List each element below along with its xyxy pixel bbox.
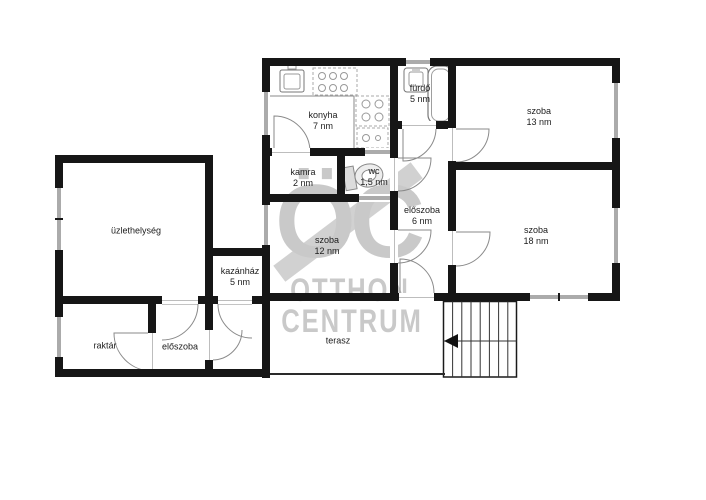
room-label-eloszoba-2: előszoba — [162, 342, 198, 353]
window — [262, 92, 270, 135]
window — [359, 194, 390, 202]
window — [55, 317, 63, 357]
door-arc-szoba18 — [456, 232, 490, 266]
door-opening — [148, 333, 156, 369]
fixtures-layer — [0, 0, 706, 500]
window-mullion — [55, 218, 63, 220]
window — [365, 148, 390, 156]
floorplan-canvas: ÖC OTTHON CENTRUM — [0, 0, 706, 500]
door-arc-szoba12 — [398, 230, 431, 263]
wall — [448, 162, 620, 170]
room-label-furdo: fürdő5 nm — [410, 83, 431, 105]
door-opening — [162, 296, 198, 304]
wall — [262, 58, 620, 66]
door-arc-kamra — [274, 116, 310, 152]
door-opening — [272, 148, 310, 156]
window — [612, 83, 620, 138]
room-label-raktar: raktár — [93, 341, 116, 352]
door-arc-raktar — [114, 333, 152, 371]
wall — [205, 248, 270, 256]
door-opening — [399, 293, 434, 301]
wall — [55, 155, 213, 163]
terrace-edge — [262, 373, 445, 375]
kitchen-counter-icon — [270, 65, 389, 150]
wall — [337, 148, 345, 202]
window — [262, 205, 270, 245]
room-label-wc: wc1,5 nm — [360, 166, 388, 188]
window — [406, 58, 430, 66]
door-arc-terasz-exit — [400, 259, 434, 293]
door-opening — [390, 158, 398, 191]
room-label-uzlethelyseg: üzlethelység — [111, 226, 161, 237]
door-opening — [205, 330, 213, 360]
room-label-szoba18: szoba18 nm — [523, 225, 548, 247]
room-label-kamra: kamra2 nm — [290, 167, 315, 189]
door-opening — [448, 231, 456, 265]
stove-burners-icon — [319, 73, 348, 92]
window — [612, 208, 620, 263]
door-arc-szoba13 — [456, 129, 489, 162]
room-label-konyha: konyha7 nm — [308, 110, 337, 132]
door-opening — [218, 296, 252, 304]
room-label-terasz: terasz — [326, 336, 351, 347]
door-arc-uzlethelyseg — [162, 304, 198, 340]
door-arc-kazanhaz — [218, 304, 252, 338]
room-label-kazanhaz: kazánház5 nm — [221, 266, 260, 288]
room-label-szoba13: szoba13 nm — [526, 106, 551, 128]
door-arc-wc — [398, 158, 431, 191]
wall — [55, 369, 270, 377]
door-arc-furdo — [403, 128, 436, 161]
room-label-eloszoba-6: előszoba6 nm — [404, 205, 440, 227]
staircase-icon — [444, 302, 517, 378]
window-mullion — [558, 293, 560, 301]
door-opening — [390, 230, 398, 263]
room-label-szoba12: szoba12 nm — [314, 235, 339, 257]
door-opening — [448, 128, 456, 161]
door-opening — [402, 121, 436, 129]
